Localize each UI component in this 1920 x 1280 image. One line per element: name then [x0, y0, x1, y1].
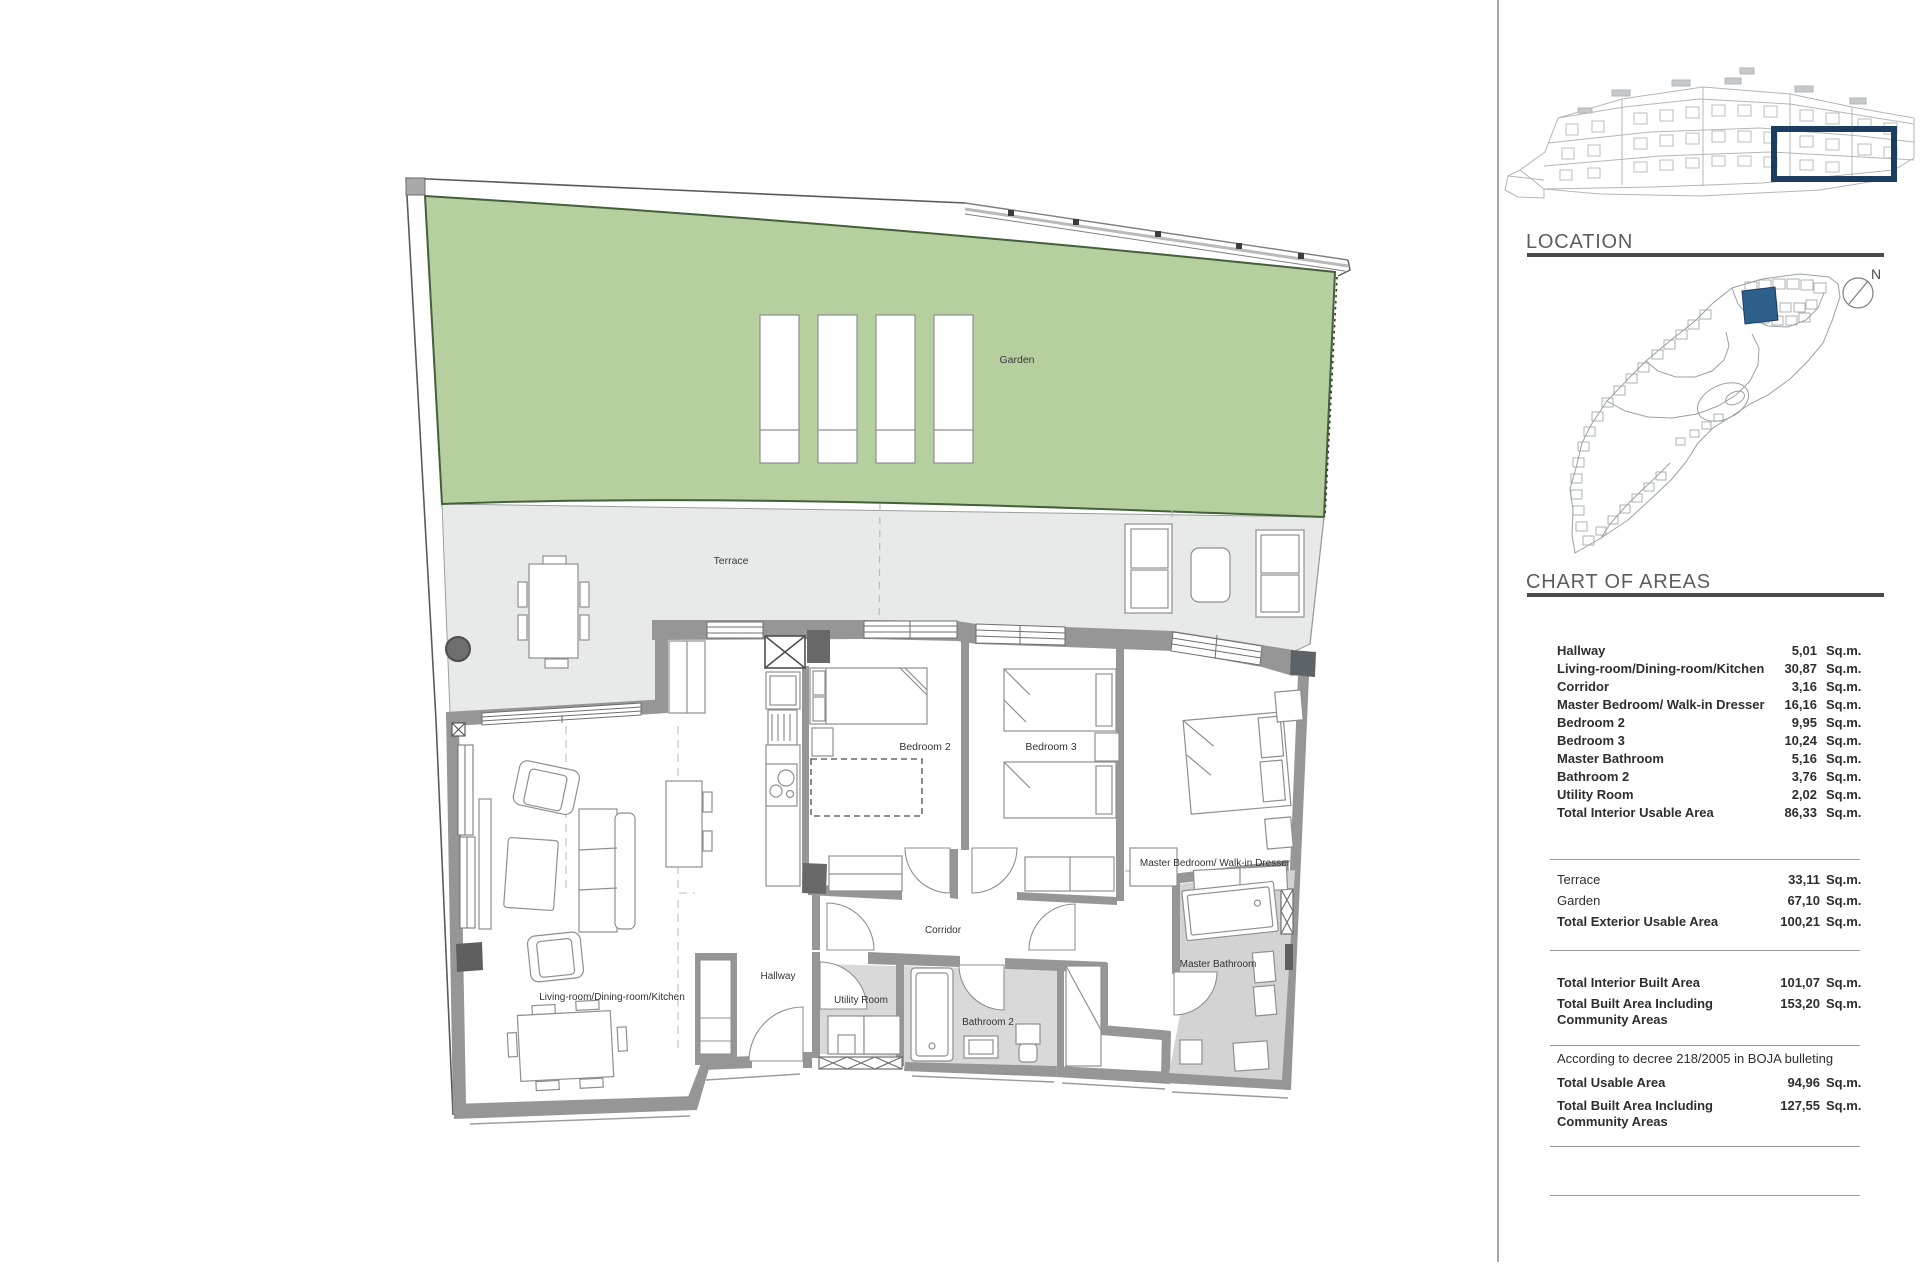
svg-text:Bathroom 2: Bathroom 2: [962, 1017, 1014, 1028]
svg-text:Master Bedroom/ Walk-in Dresse: Master Bedroom/ Walk-in Dresser: [1140, 858, 1291, 869]
svg-text:Hallway: Hallway: [760, 971, 795, 982]
svg-text:Bedroom 3: Bedroom 3: [1025, 741, 1077, 753]
svg-text:Terrace: Terrace: [713, 555, 748, 567]
svg-text:Garden: Garden: [999, 354, 1034, 366]
svg-text:N: N: [1871, 266, 1881, 282]
svg-text:Utility Room: Utility Room: [834, 995, 888, 1006]
svg-text:Bedroom 2: Bedroom 2: [899, 741, 951, 753]
svg-text:Master Bathroom: Master Bathroom: [1180, 959, 1257, 970]
svg-text:Living-room/Dining-room/Kitche: Living-room/Dining-room/Kitchen: [539, 992, 685, 1003]
svg-text:Corridor: Corridor: [925, 925, 962, 936]
